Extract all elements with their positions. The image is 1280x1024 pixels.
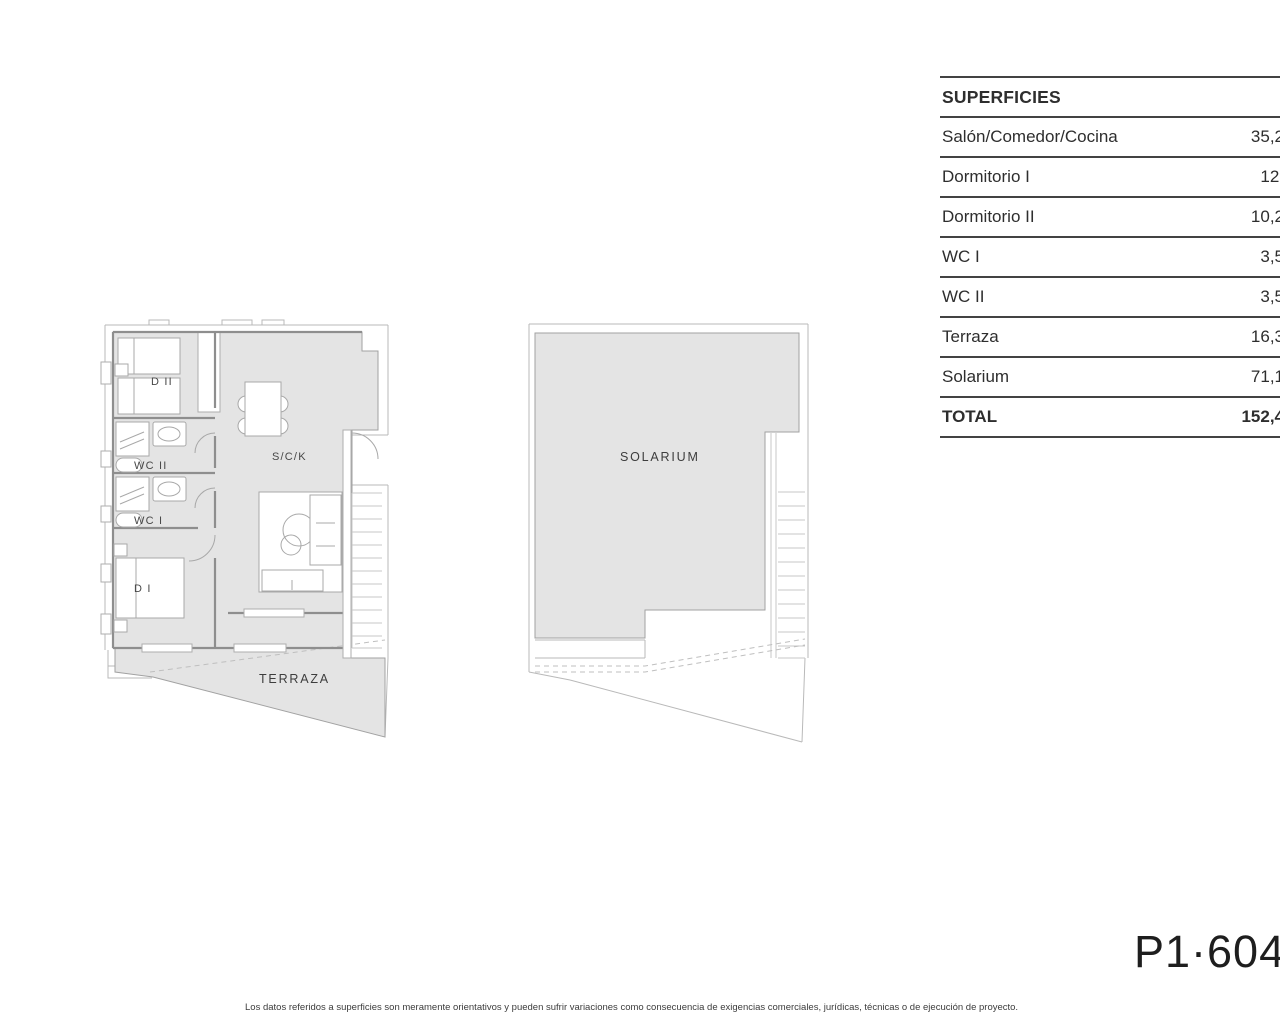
table-row: WC II3,5: [940, 278, 1280, 318]
solarium-floor: [535, 333, 799, 638]
room-label-d1: D I: [134, 583, 152, 595]
wall-tab: [262, 320, 284, 325]
row-value: 12,: [1260, 167, 1280, 187]
row-value: 3,5: [1260, 287, 1280, 307]
plan-code: P1·604: [1134, 929, 1280, 974]
wall-strip: [198, 332, 220, 412]
table-row: TOTAL152,4: [940, 398, 1280, 438]
window: [234, 644, 286, 652]
sliding-door: [244, 609, 304, 617]
wall-tab: [149, 320, 169, 325]
window: [101, 506, 111, 522]
table-row: Salón/Comedor/Cocina35,2: [940, 118, 1280, 158]
terrace-projection-line: [535, 639, 805, 672]
row-label: WC II: [940, 287, 985, 307]
disclaimer-text: Los datos referidos a superficies son me…: [245, 1002, 1045, 1013]
edge-band: [535, 640, 645, 658]
nightstand: [114, 544, 127, 556]
terrace-projection-edge: [570, 680, 802, 742]
floorplan-solarium-level: SOLARIUM: [524, 318, 809, 748]
room-label-terraza: TERRAZA: [259, 672, 330, 686]
window: [101, 362, 111, 384]
window: [101, 564, 111, 582]
row-value: 3,5: [1260, 247, 1280, 267]
stair-wall: [343, 430, 351, 658]
window: [101, 614, 111, 634]
row-label: Solarium: [940, 367, 1009, 387]
stairs: [352, 493, 382, 648]
kitchen-cabinet: [310, 495, 341, 565]
window: [142, 644, 192, 652]
row-value: 71,1: [1251, 367, 1280, 387]
stair-wall-lines: [771, 433, 776, 658]
surfaces-table-rows: Salón/Comedor/Cocina35,2Dormitorio I12,D…: [940, 118, 1280, 438]
row-label: WC I: [940, 247, 980, 267]
table-row: Dormitorio II10,2: [940, 198, 1280, 238]
row-label: Dormitorio II: [940, 207, 1035, 227]
room-label-sck: S/C/K: [272, 451, 307, 463]
table-row: WC I3,5: [940, 238, 1280, 278]
dining-table: [245, 382, 281, 436]
entry-door-arc: [352, 433, 378, 459]
row-value: 35,2: [1251, 127, 1280, 147]
row-label: TOTAL: [940, 407, 997, 427]
row-label: Salón/Comedor/Cocina: [940, 127, 1118, 147]
plan-sheet: SUPERFICIES Salón/Comedor/Cocina35,2Dorm…: [0, 0, 1280, 1024]
room-label-d2: D II: [151, 376, 173, 388]
row-label: Terraza: [940, 327, 999, 347]
shower: [116, 477, 149, 511]
table-row: Dormitorio I12,: [940, 158, 1280, 198]
shower: [116, 422, 149, 456]
surfaces-table-title: SUPERFICIES: [940, 78, 1280, 118]
row-value: 16,3: [1251, 327, 1280, 347]
nightstand: [115, 364, 128, 376]
wall-tab: [222, 320, 252, 325]
row-value: 10,2: [1251, 207, 1280, 227]
room-label-wc2: WC II: [134, 460, 168, 472]
table-row: Terraza16,3: [940, 318, 1280, 358]
table-row: Solarium71,1: [940, 358, 1280, 398]
room-label-wc1: WC I: [134, 515, 163, 527]
nightstand: [114, 620, 127, 632]
terrace-floor: [115, 648, 385, 737]
row-value: 152,4: [1241, 407, 1280, 427]
stairs: [778, 492, 805, 658]
surfaces-table: SUPERFICIES Salón/Comedor/Cocina35,2Dorm…: [940, 76, 1280, 438]
room-label-solarium: SOLARIUM: [620, 450, 700, 464]
row-label: Dormitorio I: [940, 167, 1030, 187]
window: [101, 451, 111, 467]
floorplan-main-level: D II WC II WC I D I S/C/K TERRAZA: [94, 318, 390, 748]
